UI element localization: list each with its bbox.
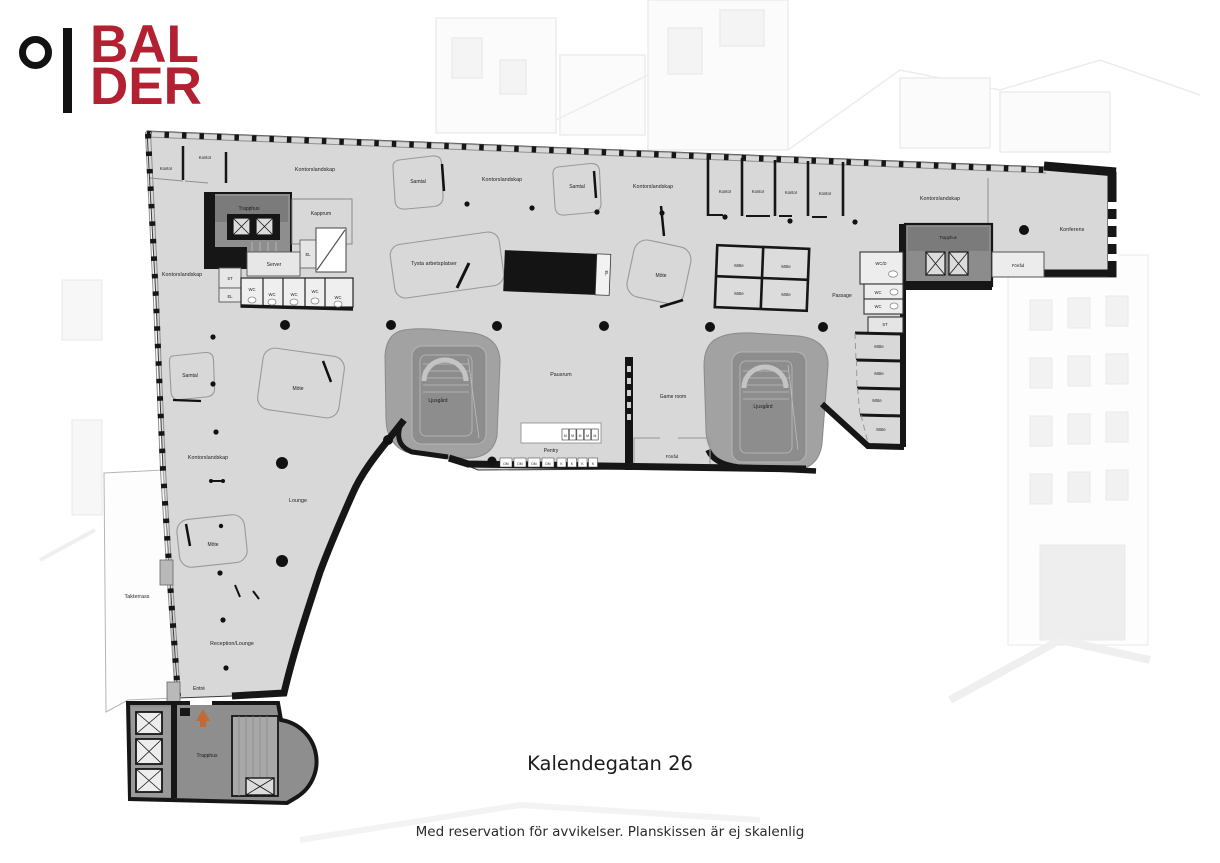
room-label-passage: Passage bbox=[832, 293, 852, 299]
atrium-left bbox=[385, 329, 500, 458]
room-label-wc: WC bbox=[875, 290, 882, 295]
room-label-wc: WC bbox=[291, 292, 298, 297]
room-label-tysta-arbetsplatser: Tysta arbetsplatser bbox=[411, 261, 457, 267]
pentry-counter bbox=[521, 423, 601, 443]
appliance-label-dm: DM bbox=[531, 462, 536, 466]
locker-wall bbox=[625, 357, 633, 470]
page-title: Kalendegatan 26 bbox=[0, 752, 1220, 775]
room-label-kontor: Kontor bbox=[160, 166, 173, 171]
room-label-kontorslandskap: Kontorslandskap bbox=[482, 177, 522, 183]
appliance-label-m: M bbox=[571, 434, 574, 438]
room-label-takterrass: Takterrass bbox=[125, 594, 150, 600]
balder-logo: BAL DER bbox=[0, 0, 260, 130]
appliance-label-dm: DM bbox=[503, 462, 508, 466]
room-label-el: EL bbox=[305, 252, 311, 257]
room-label-mote: Möte bbox=[876, 427, 886, 432]
room-label-mote: Möte bbox=[734, 291, 744, 296]
room-label-kontorslandskap: Kontorslandskap bbox=[295, 167, 335, 173]
room-label-st: ST bbox=[882, 322, 888, 327]
room-label-mote: Möte bbox=[734, 263, 744, 268]
logo-wordmark: BAL DER bbox=[90, 24, 202, 108]
room-label-ljusgard: Ljusgård bbox=[428, 397, 447, 404]
room-label-mote: Möte bbox=[872, 398, 882, 403]
room-label-kontorslandskap: Kontorslandskap bbox=[920, 196, 960, 202]
room-label-pausrum: Pausrum bbox=[550, 372, 572, 378]
stage-block bbox=[503, 250, 611, 295]
room-label-samtal: Samtal bbox=[182, 373, 198, 379]
floorplan-page: Kontor Kontor Kontorslandskap Trapphus K… bbox=[0, 0, 1220, 863]
room-label-kontor: Kontor bbox=[719, 189, 732, 194]
room-label-reception-lounge: Reception/Lounge bbox=[210, 641, 254, 647]
room-label-samtal: Samtal bbox=[569, 184, 585, 190]
room-label-forrad: Förråd bbox=[666, 454, 679, 459]
room-label-mote: Möte bbox=[655, 273, 666, 279]
appliance-label-dm: DM bbox=[517, 462, 522, 466]
room-label-mote: Möte bbox=[207, 542, 218, 548]
room-label-trapphus: Trapphus bbox=[239, 206, 260, 212]
room-label-wc: WC bbox=[269, 292, 276, 297]
room-label-mote: Möte bbox=[874, 371, 884, 376]
room-label-kontor: Kontor bbox=[819, 191, 832, 196]
room-label-mote: Möte bbox=[874, 344, 884, 349]
room-label-forrad: Förråd bbox=[1012, 263, 1025, 268]
room-label-mote: Möte bbox=[781, 292, 791, 297]
room-label-mote: Möte bbox=[781, 264, 791, 269]
room-label-wc: WC bbox=[249, 287, 256, 292]
logo-word-line2: DER bbox=[90, 66, 202, 108]
takterrass-area bbox=[104, 470, 176, 712]
room-label-pentry: Pentry bbox=[544, 448, 559, 454]
room-label-wcd: WC/D bbox=[875, 261, 886, 266]
logo-circle-icon bbox=[19, 36, 52, 69]
room-label-trapphus: Trapphus bbox=[939, 235, 957, 240]
room-label-lounge: Lounge bbox=[289, 498, 307, 504]
appliance-label-dm: DM bbox=[545, 462, 550, 466]
appliance-label-m: M bbox=[579, 434, 582, 438]
room-label-st: ST bbox=[227, 276, 233, 281]
room-label-samtal: Samtal bbox=[410, 179, 426, 185]
room-label-el-vertical: EL bbox=[604, 270, 609, 276]
room-label-kontorslandskap: Kontorslandskap bbox=[162, 272, 202, 278]
room-label-kontor: Kontor bbox=[785, 190, 798, 195]
disclaimer-text: Med reservation för avvikelser. Planskis… bbox=[0, 824, 1220, 840]
appliance-label-m: M bbox=[593, 434, 596, 438]
atrium-right bbox=[704, 333, 828, 471]
room-label-konferens: Konferens bbox=[1060, 227, 1085, 233]
room-label-wc: WC bbox=[875, 304, 882, 309]
room-label-game-room: Game room bbox=[660, 394, 686, 400]
meeting-grid bbox=[715, 245, 809, 311]
room-label-mote: Möte bbox=[292, 386, 303, 392]
room-label-el: EL bbox=[227, 294, 233, 299]
room-label-kapprum: Kapprum bbox=[311, 211, 331, 217]
room-label-entre: Entré bbox=[193, 686, 205, 692]
room-label-ljusgard: Ljusgård bbox=[753, 403, 772, 410]
room-label-wc: WC bbox=[335, 295, 342, 300]
room-label-kontor: Kontor bbox=[199, 155, 212, 160]
room-label-kontorslandskap: Kontorslandskap bbox=[633, 184, 673, 190]
room-label-kontorslandskap: Kontorslandskap bbox=[188, 455, 228, 461]
room-label-wc: WC bbox=[312, 289, 319, 294]
appliance-label-m: M bbox=[564, 434, 567, 438]
room-label-server: Server bbox=[267, 262, 282, 268]
room-label-kontor: Kontor bbox=[752, 189, 765, 194]
logo-bar-icon bbox=[63, 28, 72, 113]
appliance-label-m: M bbox=[586, 434, 589, 438]
